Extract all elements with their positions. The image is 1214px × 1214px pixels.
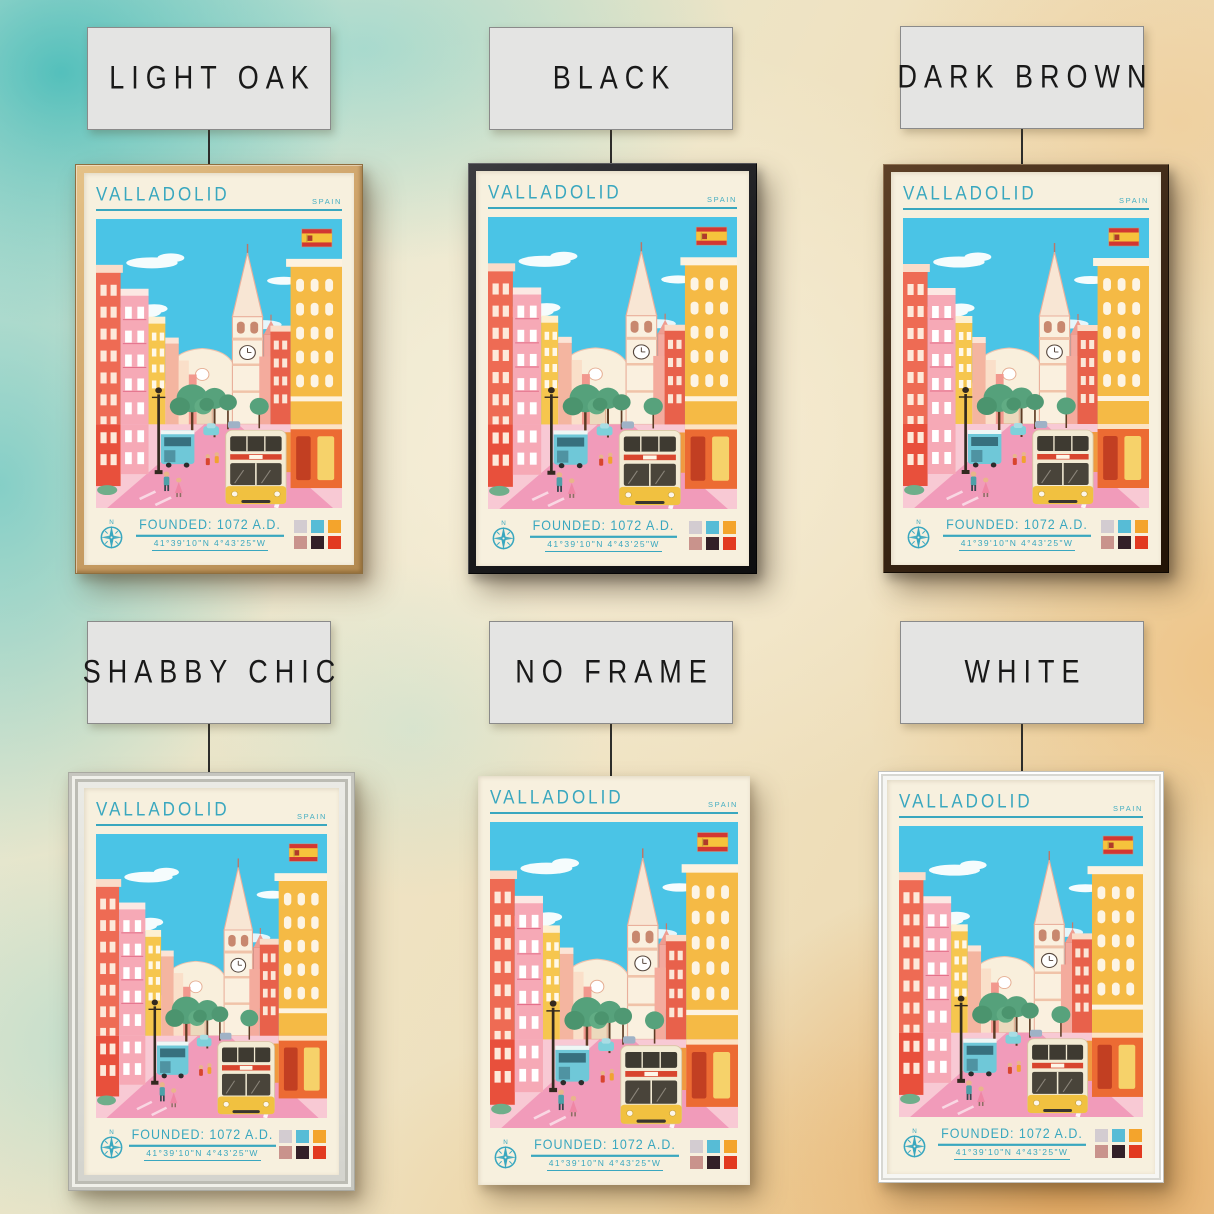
founded-block: FOUNDED: 1072 A.D. 41°39'10"N 4°43'25"W (523, 519, 684, 552)
product-mockup-wall: LIGHT OAK BLACK DARK BROWN SHABBY CHIC N… (0, 0, 1214, 1214)
founded-text: FOUNDED: 1072 A.D. (938, 1126, 1086, 1146)
frame-option-card-black[interactable]: BLACK (489, 27, 733, 130)
frame-option-card-dark-brown[interactable]: DARK BROWN (900, 26, 1144, 129)
poster-city-title: VALLADOLID (96, 799, 230, 821)
compass-rose-icon (491, 1138, 520, 1171)
poster-country-label: SPAIN (1113, 804, 1143, 813)
poster-city-title: VALLADOLID (903, 183, 1037, 205)
founded-text: FOUNDED: 1072 A.D. (136, 517, 284, 537)
poster-country-label: SPAIN (1119, 196, 1149, 205)
color-palette (294, 520, 341, 549)
palette-swatch (690, 1140, 703, 1153)
frame-option-label: NO FRAME (508, 654, 714, 691)
palette-swatch (279, 1146, 292, 1159)
palette-swatch (1135, 520, 1148, 533)
coordinates-text: 41°39'10"N 4°43'25"W (547, 1157, 664, 1171)
founded-text: FOUNDED: 1072 A.D. (943, 517, 1091, 537)
palette-swatch (1101, 520, 1114, 533)
palette-swatch (706, 521, 719, 534)
framed-poster-white: VALLADOLID SPAIN FOUNDED: 1072 A.D. 41°3… (878, 771, 1164, 1183)
coordinates-text: 41°39'10"N 4°43'25"W (959, 537, 1076, 551)
palette-swatch (311, 536, 324, 549)
hanging-wire (610, 724, 612, 777)
frame-option-label: DARK BROWN (891, 59, 1154, 96)
framed-poster-shabby-chic: VALLADOLID SPAIN FOUNDED: 1072 A.D. 41°3… (68, 772, 355, 1191)
poster-footer: FOUNDED: 1072 A.D. 41°39'10"N 4°43'25"W (96, 1118, 327, 1168)
poster-header: VALLADOLID SPAIN (96, 186, 342, 211)
poster-paper: VALLADOLID SPAIN FOUNDED: 1072 A.D. 41°3… (478, 776, 750, 1185)
palette-swatch (1129, 1145, 1142, 1158)
frame-option-label: SHABBY CHIC (76, 654, 343, 691)
hanging-wire (1021, 129, 1023, 165)
poster-header: VALLADOLID SPAIN (96, 801, 327, 826)
palette-swatch (707, 1140, 720, 1153)
poster-illustration (488, 217, 737, 509)
frame-option-label: WHITE (958, 654, 1087, 691)
valladolid-street-scene (903, 218, 1149, 508)
palette-swatch (689, 537, 702, 550)
color-palette (1101, 520, 1148, 549)
frame-option-card-shabby-chic[interactable]: SHABBY CHIC (87, 621, 331, 724)
poster-illustration (899, 826, 1143, 1117)
poster-footer: FOUNDED: 1072 A.D. 41°39'10"N 4°43'25"W (903, 508, 1149, 558)
poster-paper: VALLADOLID SPAIN FOUNDED: 1072 A.D. 41°3… (887, 780, 1155, 1174)
poster-paper: VALLADOLID SPAIN FOUNDED: 1072 A.D. 41°3… (84, 173, 354, 565)
poster-footer: FOUNDED: 1072 A.D. 41°39'10"N 4°43'25"W (490, 1128, 738, 1178)
compass-rose-icon (904, 518, 933, 551)
framed-poster-black: VALLADOLID SPAIN FOUNDED: 1072 A.D. 41°3… (468, 163, 757, 574)
valladolid-street-scene (488, 217, 737, 509)
coordinates-text: 41°39'10"N 4°43'25"W (545, 538, 662, 552)
hanging-wire (1021, 724, 1023, 772)
palette-swatch (1112, 1129, 1125, 1142)
coordinates-text: 41°39'10"N 4°43'25"W (144, 1147, 261, 1161)
founded-block: FOUNDED: 1072 A.D. 41°39'10"N 4°43'25"W (938, 518, 1096, 551)
poster-header: VALLADOLID SPAIN (488, 184, 737, 209)
poster-footer: FOUNDED: 1072 A.D. 41°39'10"N 4°43'25"W (488, 509, 737, 559)
palette-swatch (294, 520, 307, 533)
palette-swatch (1112, 1145, 1125, 1158)
palette-swatch (1129, 1129, 1142, 1142)
palette-swatch (1118, 520, 1131, 533)
frame-option-card-light-oak[interactable]: LIGHT OAK (87, 27, 331, 130)
palette-swatch (1101, 536, 1114, 549)
poster-country-label: SPAIN (312, 197, 342, 206)
coordinates-text: 41°39'10"N 4°43'25"W (152, 537, 269, 551)
hanging-wire (208, 724, 210, 773)
poster-illustration (96, 219, 342, 508)
color-palette (279, 1130, 326, 1159)
founded-text: FOUNDED: 1072 A.D. (129, 1127, 277, 1147)
palette-swatch (328, 536, 341, 549)
founded-block: FOUNDED: 1072 A.D. 41°39'10"N 4°43'25"W (131, 1128, 274, 1161)
poster-footer: FOUNDED: 1072 A.D. 41°39'10"N 4°43'25"W (899, 1117, 1143, 1167)
poster-no-frame: VALLADOLID SPAIN FOUNDED: 1072 A.D. 41°3… (478, 776, 750, 1185)
poster-header: VALLADOLID SPAIN (899, 793, 1143, 818)
poster-country-label: SPAIN (297, 812, 327, 821)
compass-rose-icon (900, 1127, 929, 1160)
palette-swatch (1135, 536, 1148, 549)
poster-illustration (490, 822, 738, 1128)
palette-swatch (328, 520, 341, 533)
coordinates-text: 41°39'10"N 4°43'25"W (954, 1146, 1071, 1160)
poster-paper: VALLADOLID SPAIN FOUNDED: 1072 A.D. 41°3… (84, 788, 339, 1175)
compass-rose-icon (97, 518, 126, 551)
valladolid-street-scene (96, 834, 327, 1118)
palette-swatch (313, 1146, 326, 1159)
palette-swatch (279, 1130, 292, 1143)
valladolid-street-scene (490, 822, 738, 1128)
compass-rose-icon (489, 519, 518, 552)
poster-footer: FOUNDED: 1072 A.D. 41°39'10"N 4°43'25"W (96, 508, 342, 558)
palette-swatch (296, 1130, 309, 1143)
framed-poster-light-oak: VALLADOLID SPAIN FOUNDED: 1072 A.D. 41°3… (75, 164, 363, 574)
founded-text: FOUNDED: 1072 A.D. (531, 1137, 679, 1157)
frame-option-card-white[interactable]: WHITE (900, 621, 1144, 724)
palette-swatch (1118, 536, 1131, 549)
compass-rose-icon (97, 1128, 126, 1161)
poster-paper: VALLADOLID SPAIN FOUNDED: 1072 A.D. 41°3… (476, 171, 749, 566)
palette-swatch (724, 1140, 737, 1153)
frame-option-label: LIGHT OAK (102, 60, 316, 97)
hanging-wire (208, 130, 210, 165)
palette-swatch (724, 1156, 737, 1169)
founded-block: FOUNDED: 1072 A.D. 41°39'10"N 4°43'25"W (131, 518, 289, 551)
founded-block: FOUNDED: 1072 A.D. 41°39'10"N 4°43'25"W (525, 1138, 685, 1171)
color-palette (1095, 1129, 1142, 1158)
palette-swatch (313, 1130, 326, 1143)
valladolid-street-scene (899, 826, 1143, 1117)
poster-header: VALLADOLID SPAIN (903, 185, 1149, 210)
palette-swatch (723, 537, 736, 550)
palette-swatch (689, 521, 702, 534)
poster-illustration (903, 218, 1149, 508)
palette-swatch (707, 1156, 720, 1169)
poster-city-title: VALLADOLID (899, 791, 1033, 813)
framed-poster-dark-brown: VALLADOLID SPAIN FOUNDED: 1072 A.D. 41°3… (883, 164, 1169, 573)
poster-country-label: SPAIN (707, 195, 737, 204)
palette-swatch (296, 1146, 309, 1159)
poster-illustration (96, 834, 327, 1118)
palette-swatch (723, 521, 736, 534)
palette-swatch (1095, 1129, 1108, 1142)
palette-swatch (690, 1156, 703, 1169)
founded-text: FOUNDED: 1072 A.D. (530, 518, 678, 538)
frame-option-card-no-frame[interactable]: NO FRAME (489, 621, 733, 724)
frame-option-label: BLACK (546, 60, 677, 97)
color-palette (690, 1140, 737, 1169)
founded-block: FOUNDED: 1072 A.D. 41°39'10"N 4°43'25"W (934, 1127, 1090, 1160)
palette-swatch (1095, 1145, 1108, 1158)
poster-header: VALLADOLID SPAIN (490, 789, 738, 814)
poster-paper: VALLADOLID SPAIN FOUNDED: 1072 A.D. 41°3… (891, 172, 1161, 565)
poster-city-title: VALLADOLID (96, 184, 230, 206)
color-palette (689, 521, 736, 550)
palette-swatch (294, 536, 307, 549)
valladolid-street-scene (96, 219, 342, 508)
palette-swatch (311, 520, 324, 533)
poster-country-label: SPAIN (708, 800, 738, 809)
poster-city-title: VALLADOLID (490, 787, 624, 809)
palette-swatch (706, 537, 719, 550)
poster-city-title: VALLADOLID (488, 182, 622, 204)
hanging-wire (610, 130, 612, 164)
